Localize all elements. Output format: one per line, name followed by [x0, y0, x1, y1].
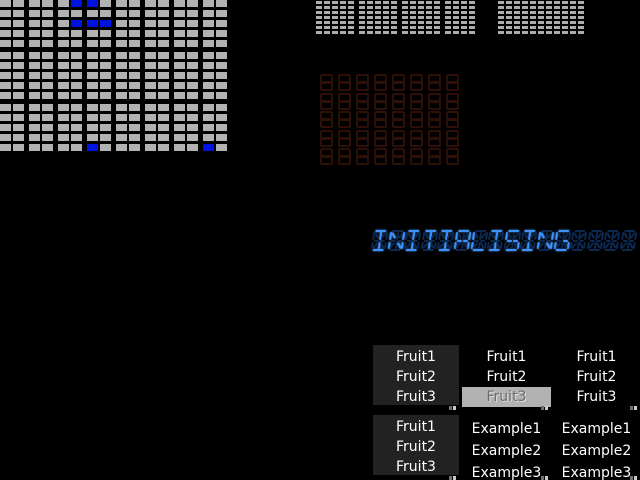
list-item[interactable]: Fruit3 [373, 457, 459, 477]
listbox-fruit-list-4[interactable]: Fruit1Fruit2Fruit3 [373, 415, 459, 475]
list-item[interactable]: Fruit2 [373, 367, 459, 387]
listbox-fruit-list-2[interactable]: Fruit1Fruit2Fruit3 [462, 345, 551, 405]
list-item[interactable]: Example1 [553, 418, 640, 440]
scroll-grip-light[interactable] [545, 476, 548, 480]
list-item[interactable]: Example2 [462, 440, 551, 462]
listbox-example-list-2[interactable]: Example1Example2Example3 [553, 415, 640, 477]
screen: Fruit1Fruit2Fruit3Fruit1Fruit2Fruit3Frui… [0, 0, 640, 480]
list-item[interactable]: Example3 [462, 462, 551, 480]
scroll-grip-light[interactable] [545, 406, 548, 410]
list-item[interactable]: Fruit3 [553, 387, 640, 407]
scroll-grip-dark[interactable] [449, 476, 452, 480]
scroll-grip-dark[interactable] [449, 406, 452, 410]
listbox-fruit-list-3[interactable]: Fruit1Fruit2Fruit3 [553, 345, 640, 405]
listbox-area: Fruit1Fruit2Fruit3Fruit1Fruit2Fruit3Frui… [0, 0, 640, 480]
scroll-grip-dark[interactable] [541, 476, 544, 480]
scroll-grip-light[interactable] [634, 476, 637, 480]
scroll-grip-dark[interactable] [630, 406, 633, 410]
listbox-example-list-1[interactable]: Example1Example2Example3 [462, 415, 551, 477]
list-item[interactable]: Fruit1 [553, 347, 640, 367]
list-item[interactable]: Example3 [553, 462, 640, 480]
list-item[interactable]: Example1 [462, 418, 551, 440]
scroll-grip-dark[interactable] [541, 406, 544, 410]
list-item[interactable]: Fruit1 [373, 347, 459, 367]
list-item[interactable]: Fruit2 [373, 437, 459, 457]
list-item[interactable]: Fruit2 [553, 367, 640, 387]
list-item[interactable]: Fruit3 [462, 387, 551, 407]
scroll-grip-light[interactable] [634, 406, 637, 410]
scroll-grip-light[interactable] [453, 476, 456, 480]
list-item[interactable]: Fruit3 [373, 387, 459, 407]
list-item[interactable]: Fruit1 [462, 347, 551, 367]
list-item[interactable]: Fruit2 [462, 367, 551, 387]
list-item[interactable]: Fruit1 [373, 417, 459, 437]
scroll-grip-dark[interactable] [630, 476, 633, 480]
list-item[interactable]: Example2 [553, 440, 640, 462]
listbox-fruit-list-1[interactable]: Fruit1Fruit2Fruit3 [373, 345, 459, 405]
scroll-grip-light[interactable] [453, 406, 456, 410]
